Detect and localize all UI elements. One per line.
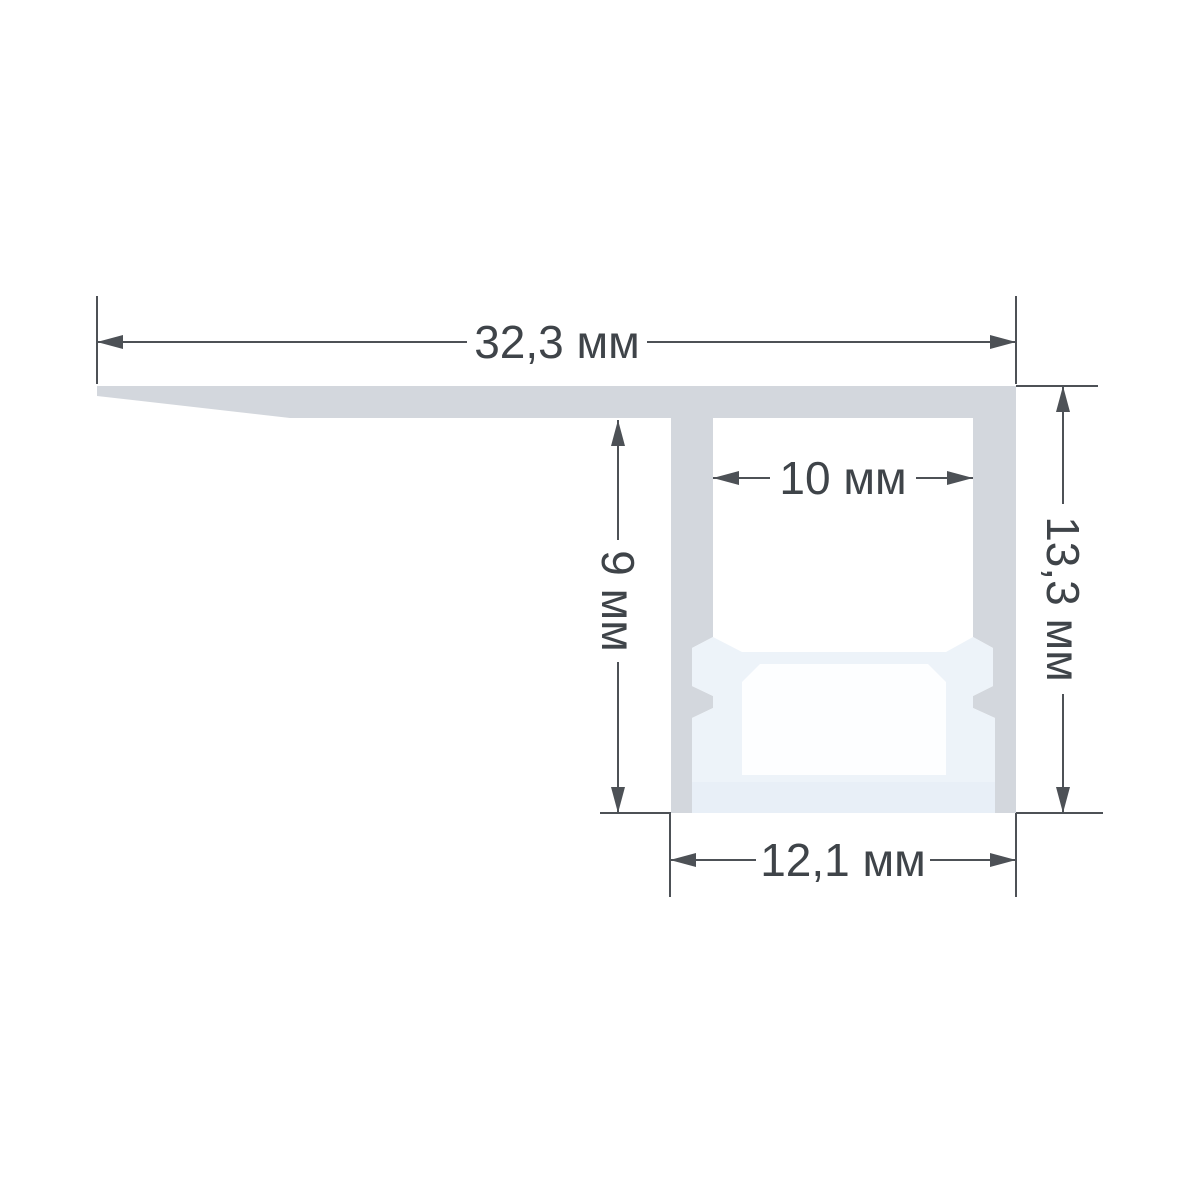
- arrowhead-base-width-right: [990, 853, 1016, 867]
- arrowhead-base-width-left: [670, 853, 696, 867]
- dim-label-base-width: 12,1 мм: [760, 834, 926, 886]
- arrowhead-inner-depth-down: [611, 787, 625, 813]
- diffuser-floor-shading: [692, 782, 995, 813]
- dim-label-inner-depth: 9 мм: [592, 550, 644, 652]
- dim-label-overall-width: 32,3 мм: [474, 316, 640, 368]
- led-strip-cavity: [742, 664, 946, 775]
- dim-label-overall-height: 13,3 мм: [1037, 516, 1089, 682]
- technical-drawing-page: 32,3 мм 10 мм 12,1 мм 9 мм 13,3 мм: [0, 0, 1200, 1201]
- profile-cross-section-drawing: 32,3 мм 10 мм 12,1 мм 9 мм 13,3 мм: [0, 0, 1200, 1201]
- arrowhead-overall-height-up: [1056, 386, 1070, 412]
- arrowhead-overall-height-down: [1056, 787, 1070, 813]
- arrowhead-overall-width-right: [990, 335, 1016, 349]
- arrowhead-overall-width-left: [97, 335, 123, 349]
- arrowhead-slot-width-right: [947, 471, 973, 485]
- dim-label-slot-width: 10 мм: [779, 452, 906, 504]
- arrowhead-inner-depth-up: [611, 420, 625, 446]
- arrowhead-slot-width-left: [713, 471, 739, 485]
